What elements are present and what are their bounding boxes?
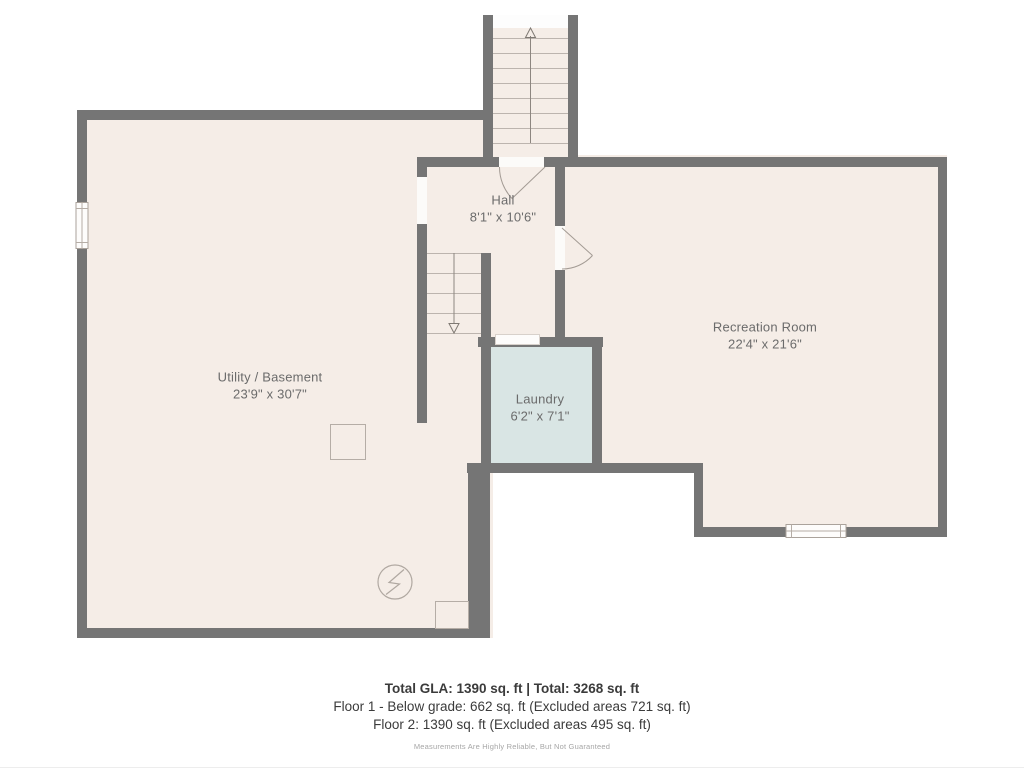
footer-disclaimer: Measurements Are Highly Reliable, But No… <box>0 742 1024 751</box>
window-icon <box>76 203 88 249</box>
footer-total-gla: Total GLA: 1390 sq. ft | Total: 3268 sq.… <box>0 681 1024 696</box>
electrical-panel-icon <box>378 565 412 599</box>
down-arrow-icon <box>449 324 459 334</box>
room-dims-recreation: 22'4" x 21'6" <box>728 337 802 352</box>
room-name-laundry: Laundry <box>516 392 564 407</box>
fixture-box <box>331 425 366 460</box>
room-dims-hall: 8'1" x 10'6" <box>470 210 536 225</box>
footer-summary: Total GLA: 1390 sq. ft | Total: 3268 sq.… <box>0 681 1024 751</box>
stairs-up <box>493 28 568 144</box>
footer-floor2: Floor 2: 1390 sq. ft (Excluded areas 495… <box>0 717 1024 732</box>
room-name-recreation: Recreation Room <box>713 320 817 335</box>
fixture-box <box>436 602 469 629</box>
room-dims-utility: 23'9" x 30'7" <box>233 387 307 402</box>
recreation-door-swing <box>562 228 593 269</box>
stairs-down <box>427 253 481 334</box>
floorplan-page: Utility / Basement 23'9" x 30'7" Hall 8'… <box>0 0 1024 768</box>
room-name-utility: Utility / Basement <box>218 370 323 385</box>
plan-linework <box>0 0 1024 768</box>
footer-floor1: Floor 1 - Below grade: 662 sq. ft (Exclu… <box>0 699 1024 714</box>
room-dims-laundry: 6'2" x 7'1" <box>510 409 569 424</box>
basement-floorplan: Utility / Basement 23'9" x 30'7" Hall 8'… <box>0 0 1024 768</box>
window-icon <box>786 525 846 538</box>
room-name-hall: Hall <box>491 193 514 208</box>
